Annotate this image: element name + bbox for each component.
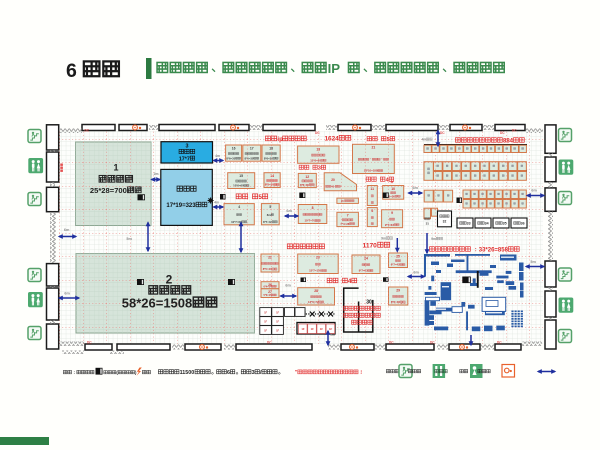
svg-text:3: 3 bbox=[252, 370, 255, 376]
svg-text:1F: 1F bbox=[329, 327, 333, 331]
svg-text:6m: 6m bbox=[286, 209, 292, 213]
svg-text:DC: DC bbox=[430, 341, 435, 345]
svg-text:DC: DC bbox=[500, 131, 505, 135]
svg-text:35: 35 bbox=[503, 222, 507, 226]
svg-text:DC: DC bbox=[87, 341, 92, 345]
svg-text:6m: 6m bbox=[64, 292, 70, 296]
svg-text:5m: 5m bbox=[530, 260, 536, 264]
svg-text:2: 2 bbox=[166, 273, 173, 287]
svg-text:1170: 1170 bbox=[363, 243, 378, 250]
svg-text:1F: 1F bbox=[311, 327, 315, 331]
svg-text:1624: 1624 bbox=[324, 136, 339, 143]
svg-text:1F: 1F bbox=[276, 311, 279, 315]
svg-text:6: 6 bbox=[227, 370, 230, 376]
svg-text:4m: 4m bbox=[215, 154, 220, 158]
svg-text:DC: DC bbox=[267, 341, 272, 345]
svg-text:DC: DC bbox=[389, 341, 394, 345]
svg-text:30: 30 bbox=[366, 300, 372, 306]
svg-text:33*26=858: 33*26=858 bbox=[479, 248, 509, 254]
svg-text:1F: 1F bbox=[276, 329, 279, 333]
svg-text:5m: 5m bbox=[126, 237, 132, 241]
svg-text:2m: 2m bbox=[330, 333, 335, 337]
svg-text:17*19=323: 17*19=323 bbox=[166, 203, 196, 209]
svg-text:6m: 6m bbox=[412, 186, 418, 190]
svg-text:884: 884 bbox=[503, 139, 514, 145]
svg-text:2m: 2m bbox=[154, 172, 159, 176]
svg-text:58*26=1508: 58*26=1508 bbox=[122, 296, 193, 311]
svg-text:4m: 4m bbox=[422, 138, 427, 142]
svg-text:6m: 6m bbox=[413, 271, 419, 275]
svg-text:9m: 9m bbox=[431, 237, 436, 241]
svg-text:5: 5 bbox=[387, 137, 390, 143]
svg-text:1F: 1F bbox=[276, 320, 279, 324]
svg-text:1F: 1F bbox=[264, 320, 267, 324]
svg-text:25*28=700: 25*28=700 bbox=[90, 186, 127, 195]
svg-text:1: 1 bbox=[114, 163, 119, 173]
svg-text:3: 3 bbox=[318, 166, 321, 172]
svg-text:9m: 9m bbox=[381, 237, 386, 241]
svg-text:6m: 6m bbox=[285, 284, 291, 288]
svg-text:17*7: 17*7 bbox=[179, 156, 190, 162]
svg-text:34: 34 bbox=[485, 222, 489, 226]
svg-text:6m: 6m bbox=[64, 228, 70, 232]
svg-text:1F: 1F bbox=[264, 329, 267, 333]
svg-text:1F: 1F bbox=[320, 327, 324, 331]
svg-text:IP: IP bbox=[328, 61, 341, 76]
svg-text:ip: ip bbox=[277, 136, 283, 143]
svg-text:11500: 11500 bbox=[180, 370, 195, 376]
svg-text:DC: DC bbox=[512, 129, 517, 133]
svg-text:DC: DC bbox=[85, 129, 90, 133]
svg-text:33: 33 bbox=[467, 222, 471, 226]
svg-text:1F: 1F bbox=[264, 311, 267, 315]
svg-text:DC: DC bbox=[497, 341, 502, 345]
svg-text:4m: 4m bbox=[214, 201, 219, 205]
svg-text:36: 36 bbox=[521, 222, 525, 226]
svg-text:32: 32 bbox=[443, 220, 447, 224]
svg-text:5: 5 bbox=[258, 194, 262, 201]
svg-text:DC: DC bbox=[315, 131, 320, 135]
svg-text:6: 6 bbox=[66, 60, 77, 82]
svg-text:6m: 6m bbox=[531, 189, 537, 193]
svg-text:3: 3 bbox=[186, 144, 189, 150]
svg-text:DC: DC bbox=[440, 131, 445, 135]
svg-text:1F: 1F bbox=[301, 327, 305, 331]
